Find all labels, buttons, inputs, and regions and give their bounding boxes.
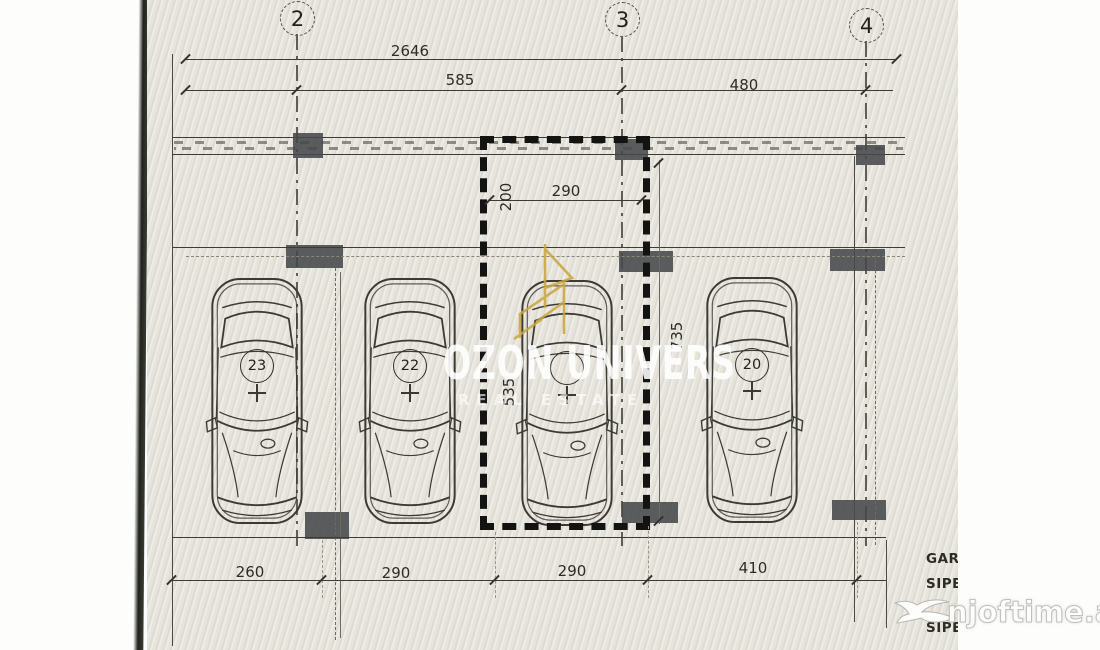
dim-line-overall [186,59,897,60]
space-number-label: 22 [401,358,419,374]
dim-bottom-2: 290 [366,564,426,582]
ozon-univers-logo [512,242,588,340]
extension-line [322,540,323,598]
grid-bubble-4: 4 [849,8,884,43]
grid-axis-line-4 [865,41,867,546]
column [856,145,885,165]
grid-bubble-3: 3 [605,2,640,37]
stall-divider-dashed [335,268,336,640]
center-cross-mark [743,382,761,400]
right-dashed-line [875,255,876,545]
space-number-23: 23 [240,349,274,383]
center-cross-mark [248,384,266,402]
dim-space-front-offset: 200 [497,177,513,217]
center-cross-mark [401,384,419,402]
ozon-univers-watermark-subtitle: REAL ESTATE [451,391,651,409]
side-note-garage: GARA [926,551,958,567]
extension-line [857,522,858,598]
space-number-20: 20 [735,348,769,382]
dim-space-width: 290 [536,182,596,200]
scanned-parking-plan: 2 3 4 2646 585 480 [0,0,1100,650]
grid-bubble-2: 2 [280,1,315,36]
column [293,133,323,158]
extension-line [648,526,649,598]
column [305,512,349,539]
right-wall-line [854,156,855,622]
space-number-label: 23 [248,358,266,374]
bottom-wall-line [172,537,886,538]
dim-top-2: 480 [714,76,774,94]
extension-line [495,532,496,598]
dim-bottom-3: 290 [542,562,602,580]
car-top-view [700,271,804,529]
space-number-22: 22 [393,349,427,383]
dim-bottom-4: 410 [723,559,783,577]
right-lower-line [886,540,887,628]
njoftime-watermark-text: njoftime.al [947,595,1100,629]
stall-divider-line [340,272,341,638]
grid-label: 4 [860,14,873,38]
dim-line-top-segments [186,90,893,91]
grid-label: 2 [291,7,304,31]
column [830,249,885,271]
dim-overall: 2646 [378,42,442,60]
grid-label: 3 [616,8,629,32]
dim-bottom-1: 260 [220,563,280,581]
side-note-siperfaqja-1: SIPE [926,576,958,592]
ozon-univers-watermark-title: OZON UNIVERS [443,340,659,386]
dim-top-1: 585 [430,71,490,89]
space-number-label: 20 [743,357,761,373]
column [832,500,886,520]
